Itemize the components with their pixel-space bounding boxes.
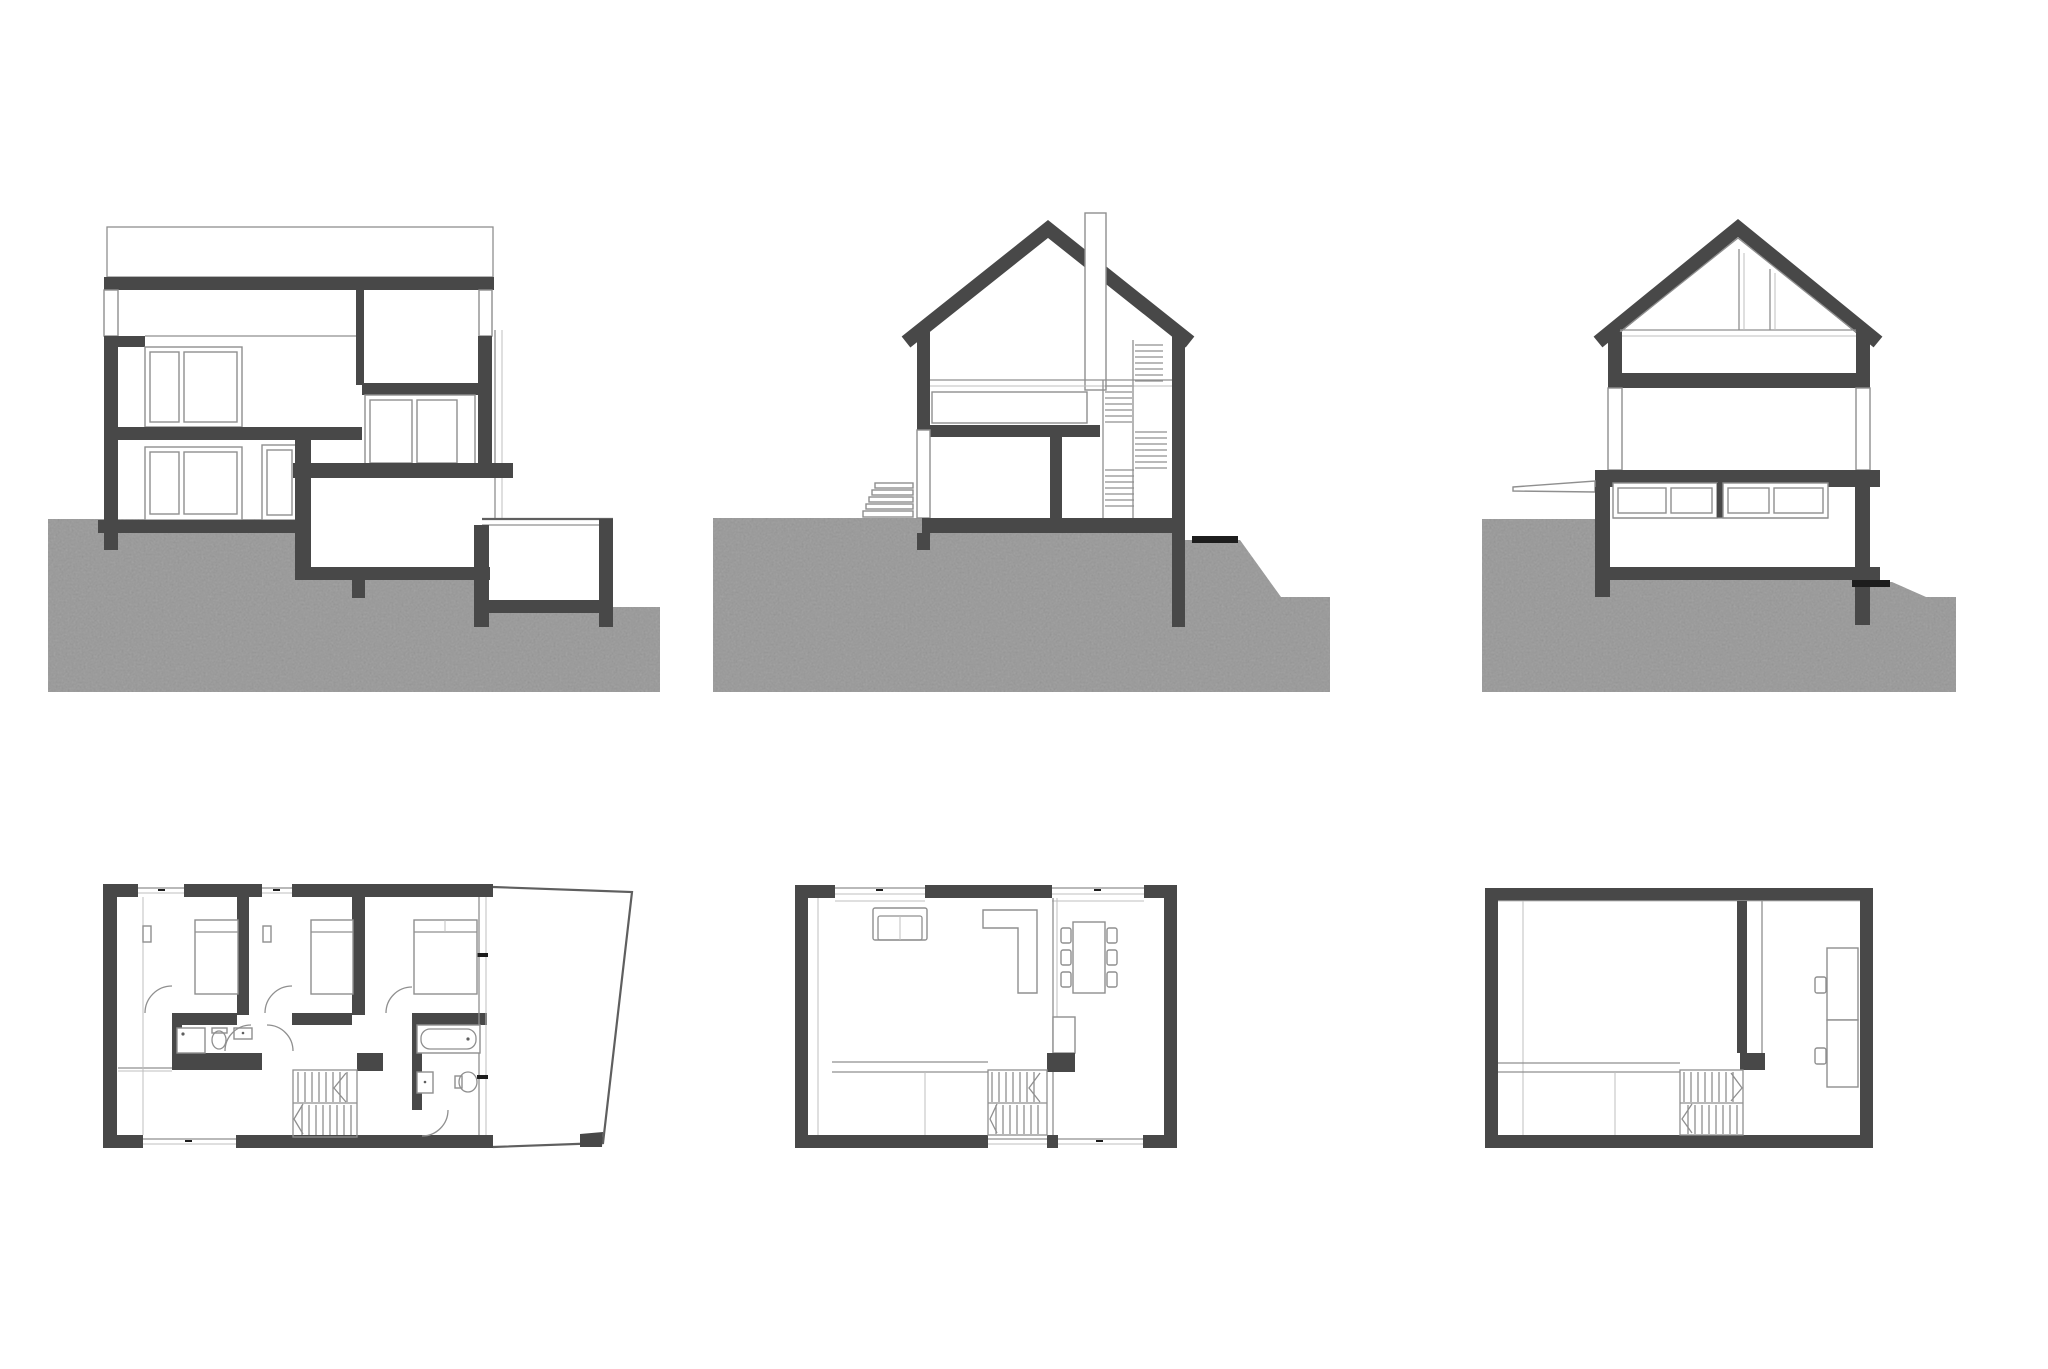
window-tick <box>1096 1140 1103 1142</box>
window-gap <box>1052 885 1144 898</box>
stair-flight <box>1135 345 1163 381</box>
shower-drain <box>181 1032 184 1035</box>
partition-wall <box>352 897 365 1015</box>
bed <box>311 920 353 994</box>
terrain <box>713 518 1330 692</box>
stair-flight <box>1105 386 1132 422</box>
bathtub-drain <box>466 1037 469 1040</box>
wall-stub <box>1047 1053 1075 1072</box>
foundation-stub <box>474 613 489 627</box>
gable-roof <box>906 229 1190 342</box>
ground-slab <box>1595 567 1880 580</box>
window-pane <box>370 400 412 463</box>
right-wall <box>1172 332 1185 627</box>
exterior-step <box>875 483 913 488</box>
terrace-edge-marker <box>1192 536 1238 543</box>
left-wall <box>1608 332 1622 373</box>
wall-stub <box>357 1053 383 1071</box>
window-tick <box>876 889 883 891</box>
window-opening-bracket <box>263 926 271 942</box>
stair-treads <box>1688 1105 1737 1134</box>
window-tick <box>273 889 280 891</box>
foundation-stub <box>917 533 930 550</box>
s3-svg <box>1470 210 1970 705</box>
half-level-slab <box>362 383 478 395</box>
annex-floor-slab <box>474 600 613 613</box>
right-wall <box>1856 332 1870 373</box>
window-pane <box>150 452 179 514</box>
terrace-outline <box>493 887 632 1147</box>
floor-plan-middle <box>780 870 1190 1160</box>
terrace-edge-marker <box>1852 580 1890 587</box>
partition-wall <box>237 897 249 1015</box>
stair-treads <box>1684 1072 1733 1102</box>
basement-right-wall <box>1855 487 1870 580</box>
window-tick <box>1094 889 1101 891</box>
half-level-slab <box>293 463 513 478</box>
kitchen-counter <box>983 910 1037 993</box>
window-pane <box>150 352 179 422</box>
exterior-step <box>866 504 913 509</box>
corridor-wall <box>412 1013 487 1025</box>
terrain <box>1482 519 1956 692</box>
left-wall <box>795 885 808 1148</box>
shower <box>177 1028 205 1053</box>
annex-right-wall <box>599 519 613 605</box>
sink-drain <box>242 1032 245 1035</box>
ground-slab <box>922 518 1185 533</box>
clerestory-right <box>479 290 492 336</box>
lower-slab <box>311 567 490 580</box>
desk <box>1827 948 1858 1020</box>
window-pane <box>1728 488 1769 513</box>
glazed-wall <box>1856 388 1870 470</box>
glazing-tick <box>477 953 488 957</box>
bottom-wall <box>1485 1135 1873 1148</box>
p2-svg <box>780 870 1190 1160</box>
door-swing <box>265 986 292 1013</box>
door-swing <box>145 986 172 1013</box>
mid-wall-upper <box>356 289 364 385</box>
gable-roof <box>1598 228 1878 342</box>
foundation-stub <box>599 613 613 627</box>
chair <box>1061 972 1071 987</box>
right-wall <box>1860 888 1873 1148</box>
floor-plan-left <box>90 870 650 1160</box>
stair-treads <box>298 1072 347 1102</box>
glazing-tick <box>477 1075 488 1079</box>
section-drawing-left <box>40 215 670 700</box>
floor-plan-right <box>1470 875 1890 1160</box>
chair <box>1107 950 1117 965</box>
window-pane <box>184 352 237 422</box>
left-wall <box>103 884 117 1148</box>
canopy <box>1513 481 1595 492</box>
p3-svg <box>1470 875 1890 1160</box>
right-wall <box>1164 885 1177 1148</box>
floor-slab <box>917 425 1100 437</box>
exterior-step <box>872 490 913 495</box>
s2-svg <box>700 200 1340 700</box>
p1-svg <box>90 870 650 1160</box>
mid-wall-lower <box>295 440 311 580</box>
exterior-step <box>863 511 913 517</box>
cabinet <box>1053 1017 1075 1053</box>
dining-table <box>1073 922 1105 993</box>
left-wall <box>1485 888 1498 1148</box>
section-drawing-right <box>1470 210 1970 705</box>
stair-flight <box>1105 470 1134 506</box>
door-swing <box>386 987 412 1013</box>
window-pane <box>1618 488 1666 513</box>
glazed-wall <box>1608 388 1622 470</box>
stair-treads <box>302 1105 351 1135</box>
floor-slab <box>104 427 362 440</box>
desk <box>1827 1020 1858 1087</box>
foundation-stub <box>104 533 118 550</box>
low-cabinet <box>932 392 1087 423</box>
drawing-sheet <box>0 0 2048 1369</box>
foundation-stub <box>352 580 365 598</box>
bathroom-wall <box>172 1053 262 1070</box>
window-pane <box>1774 488 1823 513</box>
glazed-wall <box>917 430 930 518</box>
stair-flight <box>1135 432 1167 468</box>
right-wall <box>478 336 492 464</box>
partition-wall <box>1737 901 1747 1053</box>
left-wall <box>917 332 930 430</box>
top-wall <box>1485 888 1873 901</box>
clerestory-left <box>104 290 118 336</box>
corridor-wall <box>172 1013 237 1025</box>
window-pane <box>417 400 457 463</box>
stair-treads <box>996 1105 1038 1134</box>
window-tick <box>158 889 165 891</box>
chair <box>1107 928 1117 943</box>
corridor-wall <box>292 1013 352 1025</box>
chimney <box>1085 213 1106 390</box>
chair <box>1061 950 1071 965</box>
stair-treads <box>992 1072 1034 1102</box>
left-wall <box>104 336 118 550</box>
door-swing <box>422 1110 448 1136</box>
terrace-corner <box>580 1132 603 1147</box>
window-gap <box>835 885 925 898</box>
sink-drain <box>424 1081 427 1084</box>
window-pane <box>184 452 237 514</box>
foundation-stub <box>1595 578 1610 597</box>
s1-svg <box>40 215 670 700</box>
door-pane <box>267 450 292 515</box>
window-opening-bracket <box>143 926 151 942</box>
ground-slab <box>98 520 297 533</box>
interior-wall <box>1050 437 1062 522</box>
window-mullion <box>1717 483 1723 518</box>
window-tick <box>185 1140 192 1142</box>
chair <box>1815 1048 1826 1064</box>
roof-slab <box>104 277 494 290</box>
basement-left-wall <box>1595 487 1610 578</box>
attic-slab <box>1608 373 1870 388</box>
door-swing <box>267 1025 293 1051</box>
exterior-step <box>869 497 913 502</box>
roof-lining <box>1620 238 1856 332</box>
bed <box>195 920 238 994</box>
annex-left-wall <box>474 525 489 605</box>
parapet-outline <box>107 227 493 277</box>
chair <box>1107 972 1117 987</box>
chair <box>1061 928 1071 943</box>
stair-arrow <box>1682 1104 1692 1133</box>
lintel <box>104 336 145 347</box>
wall-stub <box>1740 1053 1765 1070</box>
chair <box>1815 977 1826 993</box>
section-drawing-middle <box>700 200 1340 700</box>
window-gap <box>988 1135 1047 1148</box>
window-pane <box>1671 488 1712 513</box>
